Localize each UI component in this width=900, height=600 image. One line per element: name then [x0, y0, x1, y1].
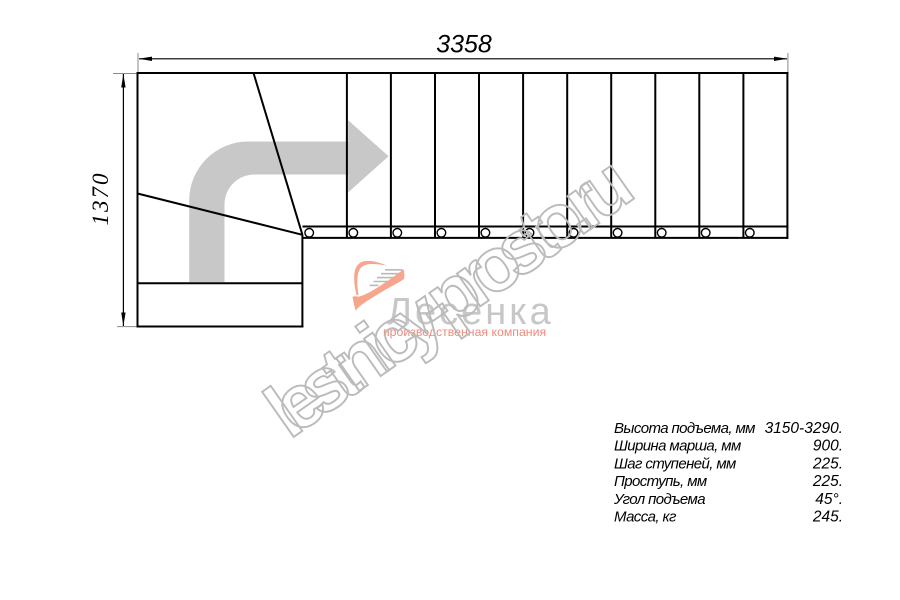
svg-text:Высота подъема, мм: Высота подъема, мм [614, 420, 755, 437]
svg-text:225.: 225. [812, 455, 843, 472]
svg-text:Угол подъема: Угол подъема [613, 491, 705, 508]
svg-text:900.: 900. [813, 438, 843, 455]
svg-text:Ширина марша, мм: Ширина марша, мм [614, 438, 741, 455]
svg-text:245.: 245. [812, 509, 843, 526]
svg-text:3358: 3358 [436, 31, 492, 59]
svg-text:Шаг ступеней, мм: Шаг ступеней, мм [614, 455, 736, 472]
svg-text:Масса, кг: Масса, кг [614, 509, 677, 526]
svg-text:Проступь, мм: Проступь, мм [614, 473, 707, 490]
svg-text:45°.: 45°. [815, 491, 843, 508]
svg-text:3150-3290.: 3150-3290. [765, 420, 843, 437]
svg-text:1370: 1370 [88, 172, 113, 226]
svg-text:225.: 225. [812, 473, 843, 490]
svg-text:lestnicy-prosto.ru: lestnicy-prosto.ru [250, 143, 644, 454]
